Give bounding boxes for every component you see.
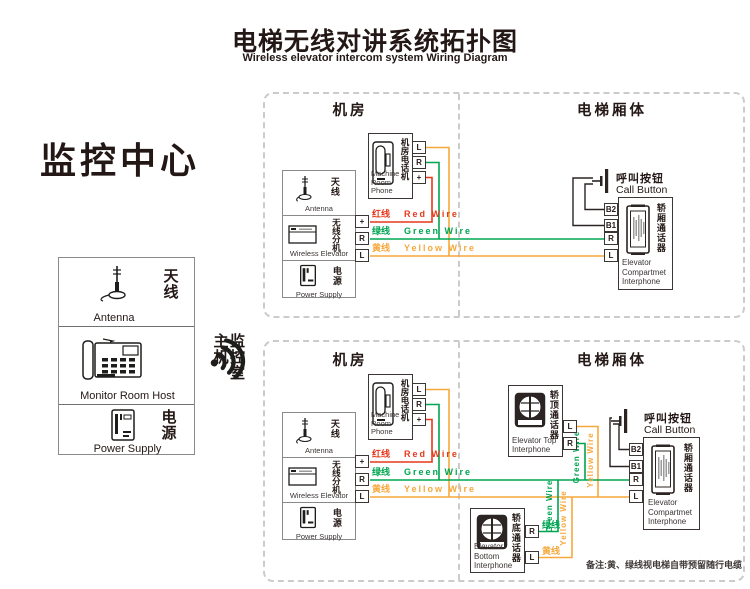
wireless-extension-icon: [288, 465, 318, 487]
wireless-extension-icon: [288, 223, 318, 245]
footnote: 备注:黄、绿线视电梯自带预留随行电缆: [586, 558, 742, 571]
antenna-icon: [295, 417, 313, 447]
top-unit-power-row: 电源 Power Supply: [283, 261, 355, 301]
elevator-bottom-interphone-en: Elevator Bottom Interphone: [474, 542, 524, 570]
wiring-diagram-page: 电梯无线对讲系统拓扑图 Wireless elevator intercom s…: [0, 0, 750, 589]
green-wire-label-zh: 绿线: [372, 226, 390, 236]
terminal-r: R: [412, 398, 426, 411]
top-unit-antenna-en: Antenna: [283, 205, 355, 214]
bottom-unit-antenna-en: Antenna: [283, 447, 355, 456]
top-wireless-unit-box: 天线 Antenna 无线分机 Wireless Elevator 电源 Pow…: [282, 170, 356, 298]
top-unit-extension-row: 无线分机 Wireless Elevator: [283, 216, 355, 261]
terminal-l: L: [629, 490, 643, 503]
top-machine-phone-box: 机房电话机 Machine Room Phone: [368, 133, 413, 199]
yellow-wire-label-zh: 黄线: [372, 484, 390, 494]
green-wire-label-top: 绿线Green Wire: [372, 227, 472, 236]
top-unit-power-zh: 电源: [331, 266, 341, 290]
terminal-r: R: [629, 473, 643, 486]
bottom-compartment-interphone-en: Elevator Compartmet Interphone: [648, 498, 692, 526]
green-wire-label-en: Green Wire: [404, 467, 472, 477]
yellow-wire-label-en: Yellow Wire: [404, 243, 476, 253]
terminal-r: R: [355, 473, 369, 486]
green-wire-label-en: Green Wire: [404, 226, 472, 236]
red-wire-label-top: 红线Red Wire: [372, 210, 459, 219]
call-button-icon: [592, 166, 612, 196]
top-compartment-interphone-zh: 轿厢通话器: [655, 203, 665, 261]
green-wire-vertical-label-bottom: Green Wire: [545, 476, 557, 536]
terminal-l: L: [355, 249, 369, 262]
terminal-b1: B1: [604, 219, 618, 232]
yellow-wire-short-label: 黄线: [542, 547, 560, 556]
red-wire-label-en: Red Wire: [404, 209, 459, 219]
bottom-compartment-interphone-zh: 轿厢通话器: [682, 443, 692, 501]
terminal-b2: B2: [604, 203, 618, 216]
terminal-plus: +: [412, 171, 426, 184]
top-compartment-interphone-en: Elevator Compartmet Interphone: [622, 258, 666, 286]
terminal-r: R: [563, 437, 577, 450]
bottom-unit-power-zh: 电源: [331, 508, 341, 532]
bottom-wireless-unit-box: 天线 Antenna 无线分机 Wireless Elevator 电源 Pow…: [282, 412, 356, 540]
compartment-interphone-icon: [649, 444, 677, 496]
terminal-b1: B1: [629, 460, 643, 473]
top-unit-antenna-zh: 天线: [329, 177, 339, 203]
red-wire-label-zh: 红线: [372, 449, 390, 459]
red-wire-label-en: Red Wire: [404, 449, 459, 459]
bottom-unit-extension-en: Wireless Elevator: [283, 492, 355, 501]
red-wire-label-bottom: 红线Red Wire: [372, 450, 459, 459]
green-wire-label-zh: 绿线: [372, 467, 390, 477]
yellow-wire-vertical-label-top: Yellow Wire: [586, 430, 598, 490]
yellow-wire-label-top: 黄线Yellow Wire: [372, 244, 476, 253]
terminal-r: R: [355, 232, 369, 245]
top-compartment-interphone-box: 轿厢通话器 Elevator Compartmet Interphone: [618, 197, 673, 290]
top-unit-extension-en: Wireless Elevator: [283, 250, 355, 259]
top-unit-power-en: Power Supply: [283, 291, 355, 300]
bottom-unit-antenna-zh: 天线: [329, 419, 339, 445]
elevator-top-interphone-en: Elevator Top Interphone: [512, 436, 556, 454]
green-wire-label-bottom: 绿线Green Wire: [372, 468, 472, 477]
terminal-l: L: [525, 551, 539, 564]
yellow-wire-vertical-label-bottom: Yellow Wire: [559, 488, 571, 548]
yellow-wire-label-bottom: 黄线Yellow Wire: [372, 485, 476, 494]
terminal-l: L: [412, 383, 426, 396]
bottom-compartment-interphone-box: 轿厢通话器 Elevator Compartmet Interphone: [643, 437, 700, 530]
speaker-icon: [514, 392, 546, 428]
terminal-l: L: [563, 420, 577, 433]
yellow-wire-branch-bottom: [426, 390, 449, 498]
compartment-interphone-icon: [624, 204, 652, 256]
antenna-icon: [295, 175, 313, 205]
terminal-plus: +: [355, 215, 369, 228]
bottom-unit-antenna-row: 天线 Antenna: [283, 413, 355, 458]
green-wire-vertical-label-top: Green Wire: [572, 427, 584, 487]
terminal-b2: B2: [629, 443, 643, 456]
bottom-unit-power-row: 电源 Power Supply: [283, 503, 355, 543]
terminal-l: L: [604, 249, 618, 262]
bottom-unit-power-en: Power Supply: [283, 533, 355, 542]
yellow-wire-label-zh: 黄线: [372, 243, 390, 253]
terminal-l: L: [355, 490, 369, 503]
top-call-button-en: Call Button: [616, 184, 667, 196]
call-button-icon: [611, 406, 631, 436]
terminal-plus: +: [412, 413, 426, 426]
bottom-call-button-en: Call Button: [644, 424, 695, 436]
bottom-machine-phone-en: Machine Room Phone: [371, 411, 412, 437]
top-unit-antenna-row: 天线 Antenna: [283, 171, 355, 216]
top-machine-phone-en: Machine Room Phone: [371, 170, 412, 196]
terminal-plus: +: [355, 455, 369, 468]
power-supply-icon: [300, 264, 316, 287]
red-wire-label-zh: 红线: [372, 209, 390, 219]
elevator-top-interphone-box: 轿顶通话器 Elevator Top Interphone: [508, 385, 563, 457]
bottom-unit-extension-row: 无线分机 Wireless Elevator: [283, 458, 355, 503]
bottom-machine-phone-box: 机房电话机 Machine Room Phone: [368, 374, 413, 440]
yellow-wire-label-en: Yellow Wire: [404, 484, 476, 494]
terminal-r: R: [412, 156, 426, 169]
power-supply-icon: [300, 506, 316, 529]
elevator-bottom-interphone-box: 轿底通话器 Elevator Bottom Interphone: [470, 508, 525, 573]
terminal-l: L: [412, 141, 426, 154]
terminal-r: R: [525, 525, 539, 538]
terminal-r: R: [604, 232, 618, 245]
